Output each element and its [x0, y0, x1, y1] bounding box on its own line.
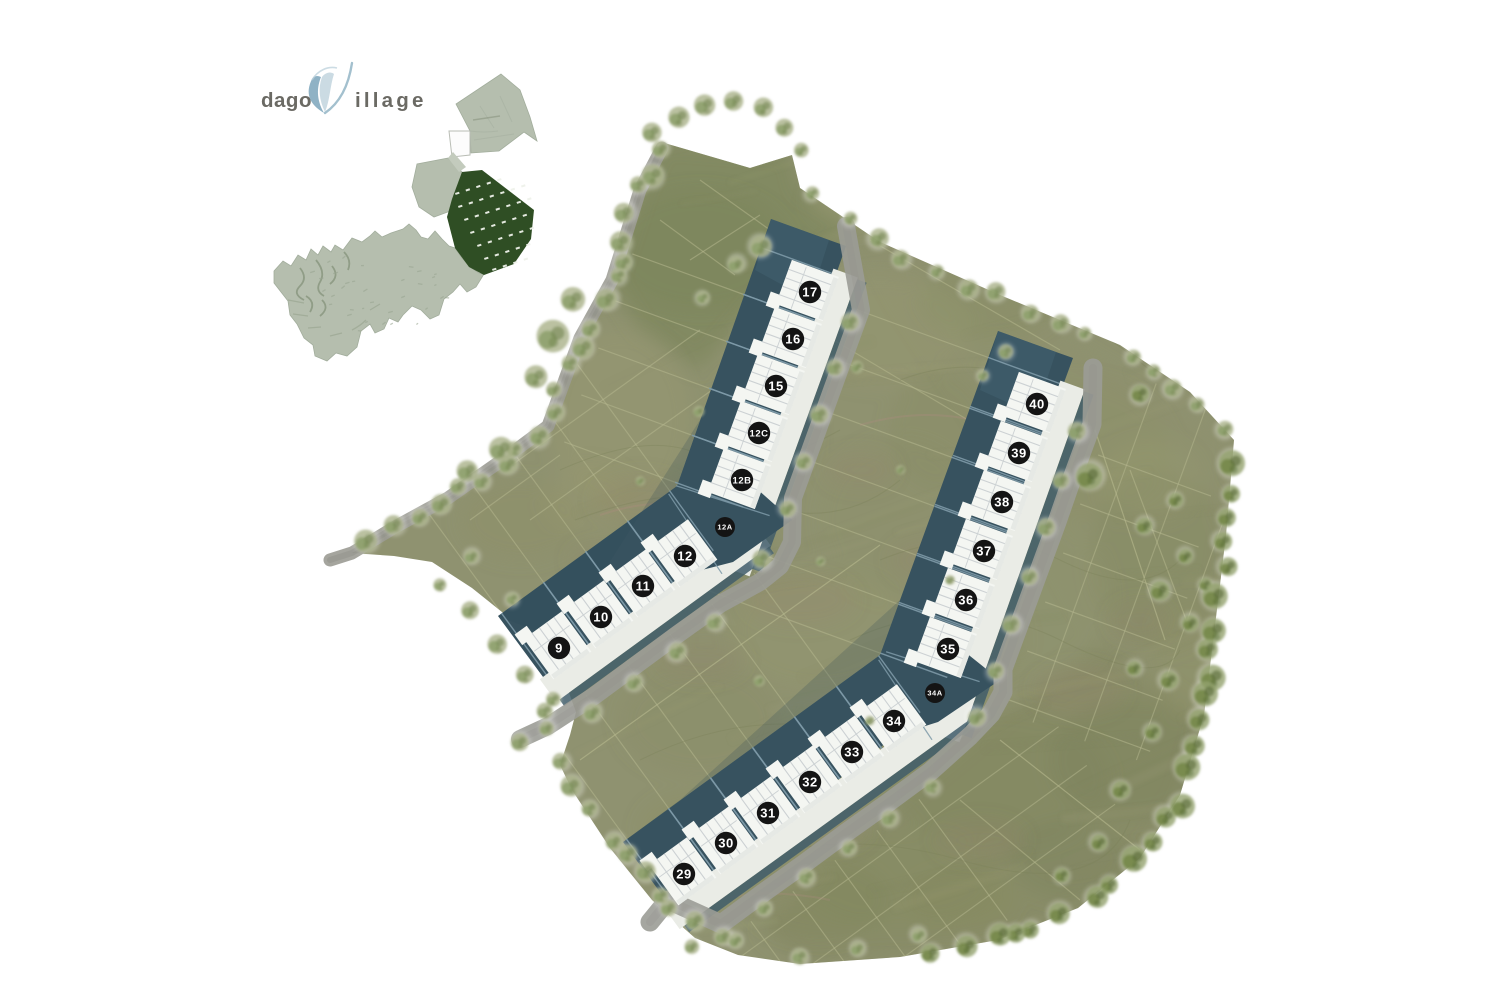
svg-text:12: 12: [677, 549, 692, 564]
svg-text:29: 29: [676, 867, 691, 882]
svg-text:32: 32: [802, 775, 817, 790]
svg-text:10: 10: [593, 610, 608, 625]
svg-text:34A: 34A: [927, 689, 942, 698]
svg-text:11: 11: [636, 579, 651, 594]
svg-text:15: 15: [768, 379, 783, 394]
svg-text:30: 30: [718, 836, 733, 851]
svg-text:12B: 12B: [733, 475, 752, 486]
svg-text:31: 31: [760, 806, 775, 821]
svg-text:12A: 12A: [717, 523, 732, 532]
svg-text:dago: dago: [261, 89, 312, 112]
svg-text:17: 17: [802, 285, 817, 300]
svg-text:40: 40: [1029, 397, 1044, 412]
svg-text:35: 35: [940, 642, 955, 657]
svg-text:39: 39: [1011, 446, 1026, 461]
svg-text:38: 38: [994, 495, 1009, 510]
svg-text:33: 33: [844, 745, 859, 760]
svg-text:36: 36: [958, 593, 973, 608]
svg-text:37: 37: [976, 544, 991, 559]
svg-text:16: 16: [785, 332, 800, 347]
svg-text:9: 9: [555, 641, 563, 656]
svg-text:illage: illage: [355, 89, 427, 112]
svg-text:12C: 12C: [750, 428, 769, 439]
svg-text:34: 34: [886, 714, 902, 729]
